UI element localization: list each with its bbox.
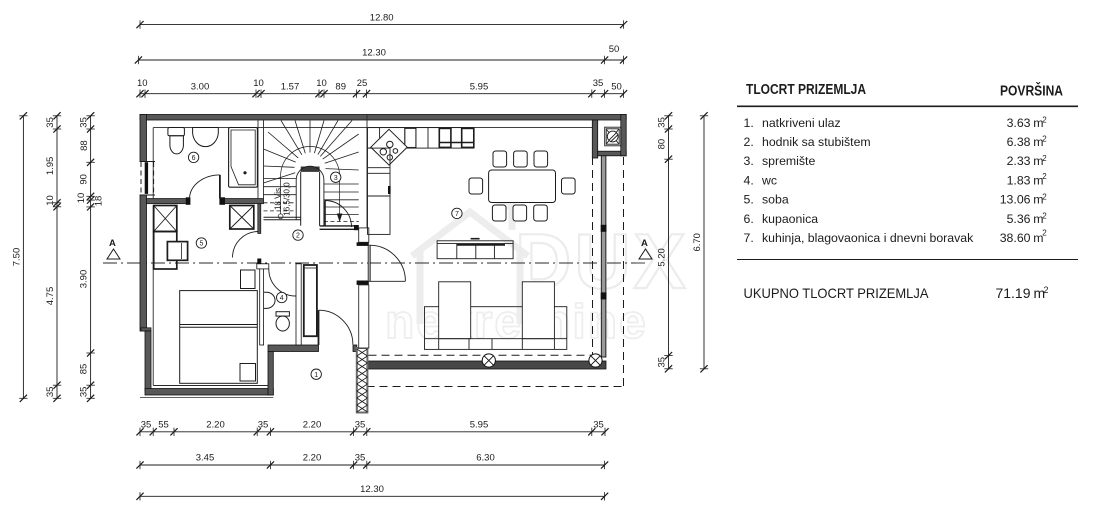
svg-text:18: 18 <box>94 196 105 207</box>
svg-text:6.30: 6.30 <box>476 453 495 464</box>
svg-text:10: 10 <box>45 195 56 206</box>
svg-text:2.20: 2.20 <box>303 420 322 431</box>
svg-text:3.00: 3.00 <box>191 82 210 93</box>
svg-text:55: 55 <box>158 420 169 431</box>
svg-text:2: 2 <box>1042 192 1047 201</box>
svg-text:35: 35 <box>258 420 269 431</box>
svg-text:5.: 5. <box>744 193 754 207</box>
svg-text:A: A <box>109 238 116 249</box>
svg-text:2: 2 <box>1042 116 1047 125</box>
svg-text:2: 2 <box>1042 134 1047 143</box>
svg-text:hodnik sa stubištem: hodnik sa stubištem <box>762 135 871 149</box>
svg-text:2.20: 2.20 <box>206 420 225 431</box>
svg-text:3.90: 3.90 <box>79 270 90 289</box>
svg-text:13.06: 13.06 <box>1000 193 1031 207</box>
svg-text:88: 88 <box>79 140 90 151</box>
svg-text:35: 35 <box>45 387 56 398</box>
svg-text:2: 2 <box>1042 154 1047 163</box>
svg-text:UKUPNO TLOCRT PRIZEMLJA: UKUPNO TLOCRT PRIZEMLJA <box>744 285 930 301</box>
svg-text:35: 35 <box>141 420 152 431</box>
svg-text:2: 2 <box>296 233 300 240</box>
svg-text:3.: 3. <box>744 154 754 168</box>
svg-text:soba: soba <box>762 193 789 207</box>
svg-text:85: 85 <box>79 364 90 375</box>
svg-text:10: 10 <box>316 78 327 89</box>
svg-text:1.95: 1.95 <box>45 157 56 176</box>
svg-text:25: 25 <box>357 78 368 89</box>
svg-text:2.: 2. <box>744 135 754 149</box>
svg-text:35: 35 <box>79 387 90 398</box>
svg-text:1.57: 1.57 <box>281 82 300 93</box>
svg-text:80: 80 <box>657 139 668 150</box>
svg-text:1: 1 <box>314 372 318 379</box>
svg-text:2: 2 <box>1042 172 1047 181</box>
svg-text:10: 10 <box>137 78 148 89</box>
svg-text:3: 3 <box>334 175 338 182</box>
svg-text:4.75: 4.75 <box>45 287 56 306</box>
svg-text:2.33: 2.33 <box>1007 154 1031 168</box>
svg-text:4.: 4. <box>744 173 754 187</box>
svg-text:35: 35 <box>593 420 604 431</box>
svg-text:18 Vis: 18 Vis <box>274 188 283 210</box>
svg-text:5: 5 <box>199 241 203 248</box>
svg-text:35: 35 <box>79 117 90 128</box>
svg-text:5.20: 5.20 <box>657 248 668 267</box>
svg-text:2: 2 <box>1042 212 1047 221</box>
svg-text:90: 90 <box>79 174 90 185</box>
svg-text:3.63: 3.63 <box>1007 116 1031 130</box>
svg-text:7.: 7. <box>744 231 754 245</box>
svg-text:35: 35 <box>657 357 668 368</box>
svg-text:kupaonica: kupaonica <box>762 212 818 226</box>
svg-text:71.19: 71.19 <box>995 285 1030 301</box>
svg-text:1.: 1. <box>744 116 754 130</box>
svg-text:12.30: 12.30 <box>360 484 384 495</box>
svg-text:kuhinja, blagovaonica i dnevni: kuhinja, blagovaonica i dnevni boravak <box>762 231 974 245</box>
svg-text:6: 6 <box>192 155 196 162</box>
svg-text:12.80: 12.80 <box>370 13 394 24</box>
svg-text:6.70: 6.70 <box>692 233 703 252</box>
svg-text:7.50: 7.50 <box>12 248 23 267</box>
svg-text:5.95: 5.95 <box>470 82 489 93</box>
svg-text:89: 89 <box>335 82 346 93</box>
svg-text:10: 10 <box>253 78 264 89</box>
svg-text:2: 2 <box>1042 228 1047 237</box>
svg-text:4: 4 <box>280 295 284 302</box>
svg-text:35: 35 <box>355 453 366 464</box>
svg-text:6.38: 6.38 <box>1007 135 1031 149</box>
svg-text:50: 50 <box>611 82 622 93</box>
svg-text:6.: 6. <box>744 212 754 226</box>
svg-text:35: 35 <box>45 117 56 128</box>
svg-text:35: 35 <box>593 78 604 89</box>
svg-text:50: 50 <box>609 44 620 55</box>
svg-text:wc: wc <box>761 173 777 187</box>
svg-text:3.45: 3.45 <box>196 453 215 464</box>
svg-text:POVRŠINA: POVRŠINA <box>1000 82 1063 100</box>
svg-text:A: A <box>641 238 648 249</box>
svg-text:natkriveni ulaz: natkriveni ulaz <box>762 116 841 130</box>
svg-text:38.60: 38.60 <box>1000 231 1031 245</box>
svg-text:7: 7 <box>455 211 459 218</box>
svg-text:2: 2 <box>1044 285 1049 295</box>
svg-text:2.20: 2.20 <box>303 453 322 464</box>
svg-text:12.30: 12.30 <box>362 48 386 59</box>
svg-text:TLOCRT PRIZEMLJA: TLOCRT PRIZEMLJA <box>746 82 866 98</box>
svg-text:spremište: spremište <box>762 154 815 168</box>
svg-text:35: 35 <box>657 117 668 128</box>
svg-text:16,5/30,0: 16,5/30,0 <box>283 182 292 216</box>
svg-text:5.95: 5.95 <box>470 420 489 431</box>
svg-text:10: 10 <box>76 193 87 204</box>
svg-text:35: 35 <box>355 420 366 431</box>
svg-text:5.36: 5.36 <box>1007 212 1031 226</box>
svg-text:1.83: 1.83 <box>1007 173 1031 187</box>
